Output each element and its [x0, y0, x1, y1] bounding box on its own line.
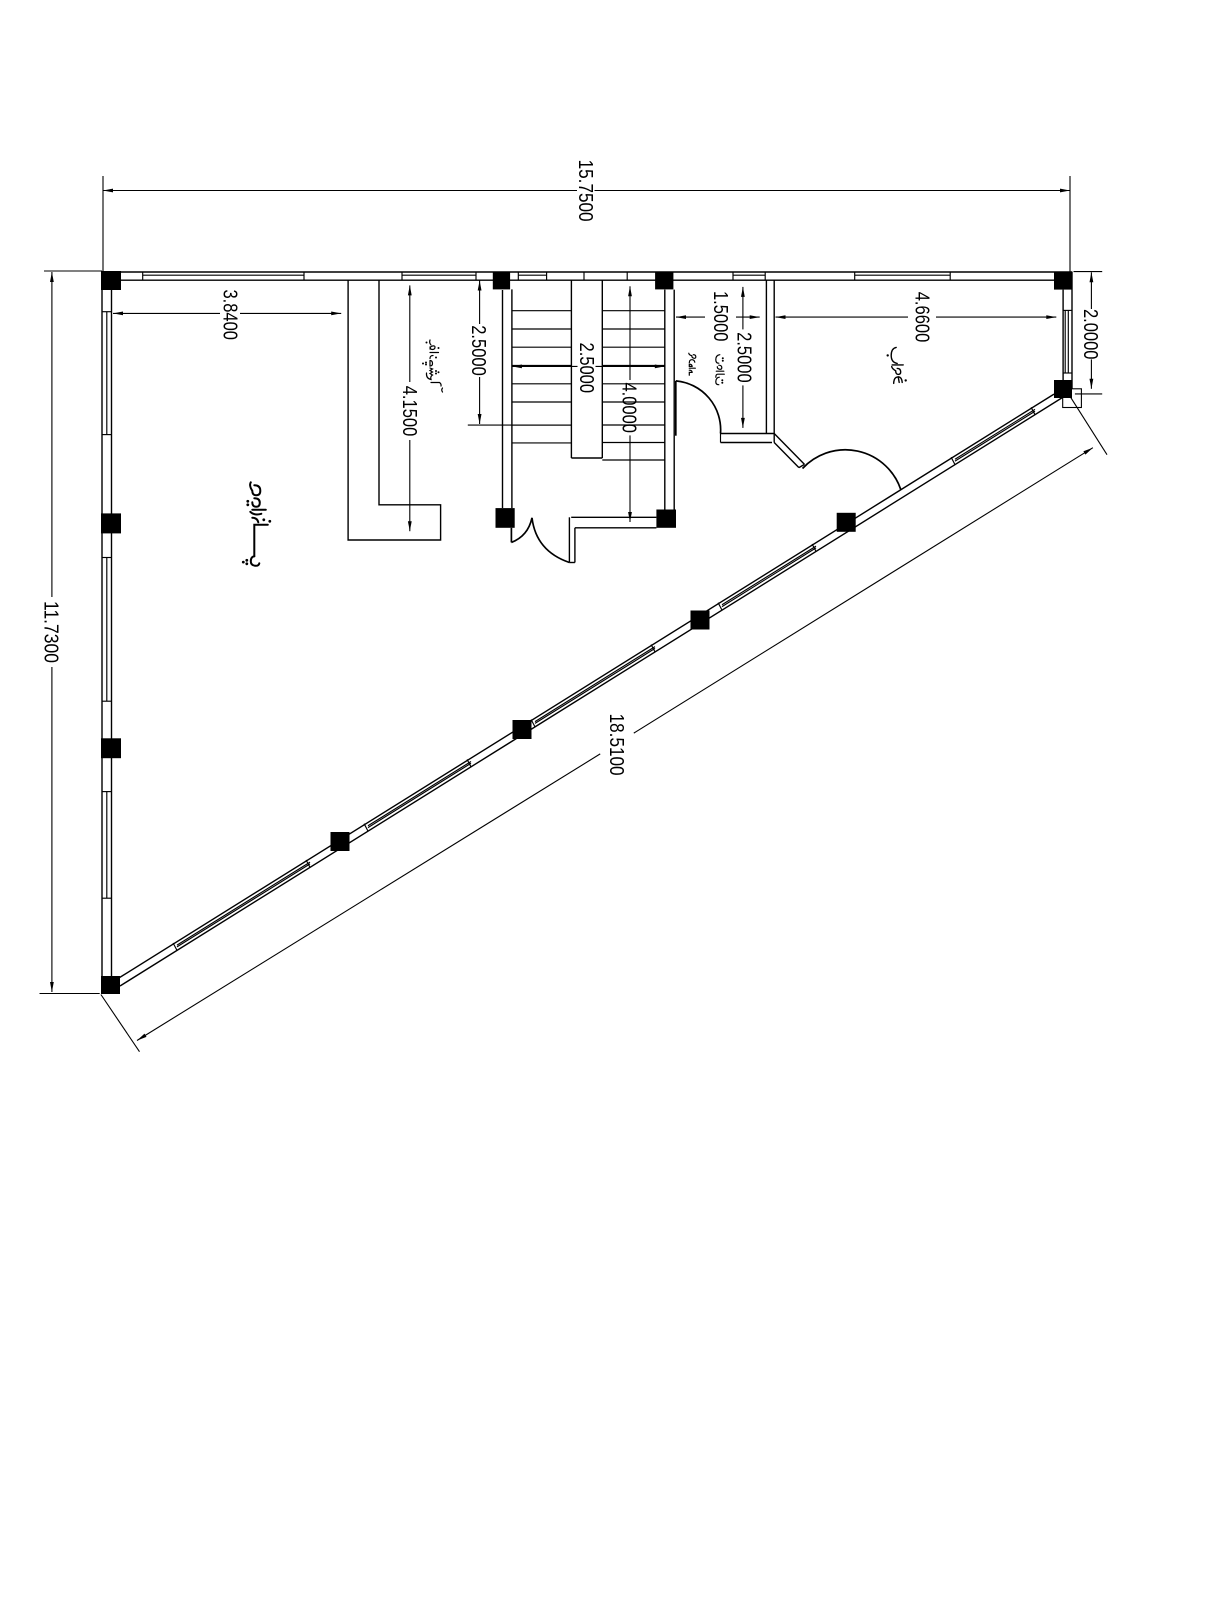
svg-text:2.0000: 2.0000: [1079, 309, 1102, 360]
svg-text:4.1500: 4.1500: [398, 386, 421, 437]
svg-text:2.5000: 2.5000: [733, 332, 756, 383]
svg-text:4.6600: 4.6600: [911, 292, 934, 343]
svg-text:2.5000: 2.5000: [575, 343, 598, 394]
svg-text:15.7500: 15.7500: [574, 160, 597, 222]
svg-text:4.0000: 4.0000: [618, 382, 641, 433]
svg-text:2.5000: 2.5000: [467, 325, 490, 376]
svg-text:11.7300: 11.7300: [40, 601, 63, 663]
svg-text:1.5000: 1.5000: [709, 291, 732, 342]
svg-text:3.8400: 3.8400: [218, 289, 241, 340]
svg-text:18.5100: 18.5100: [605, 714, 628, 776]
